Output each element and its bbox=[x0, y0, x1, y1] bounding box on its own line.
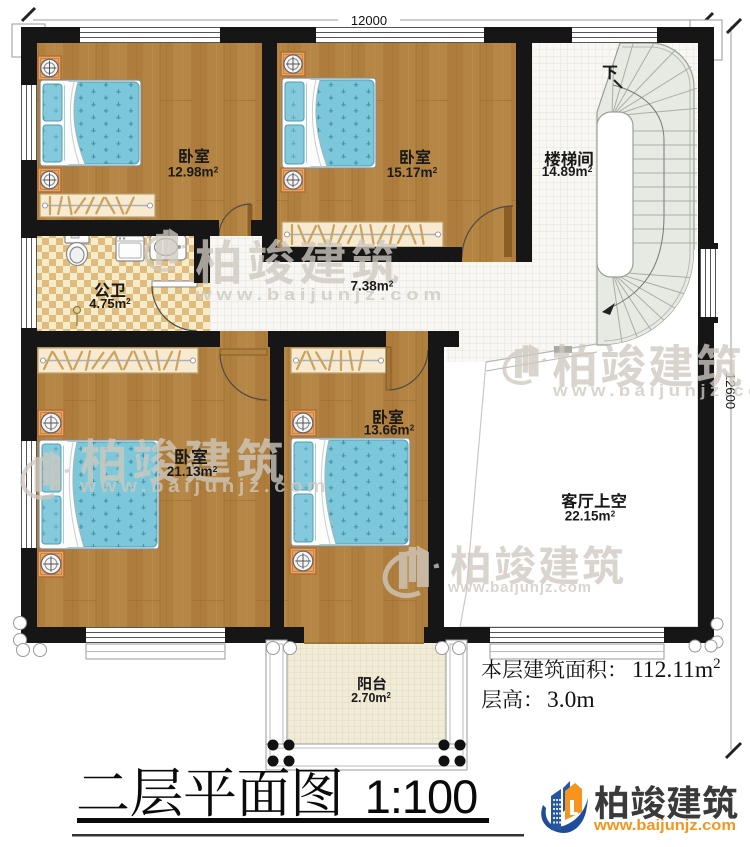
svg-text:www.baijunjz.com: www.baijunjz.com bbox=[195, 285, 446, 304]
svg-text:13.66m2: 13.66m2 bbox=[364, 422, 415, 437]
svg-text:4.75m2: 4.75m2 bbox=[89, 296, 131, 311]
svg-text:www.baijunjz.com: www.baijunjz.com bbox=[552, 381, 750, 400]
svg-text:112.11m2: 112.11m2 bbox=[632, 656, 721, 683]
svg-text:7.38m2: 7.38m2 bbox=[351, 278, 394, 293]
svg-text:www.baijunjz.com: www.baijunjz.com bbox=[593, 817, 736, 834]
svg-text:12000: 12000 bbox=[351, 13, 387, 28]
svg-text:15.17m2: 15.17m2 bbox=[387, 165, 438, 180]
svg-text:1:100: 1:100 bbox=[365, 770, 478, 823]
svg-text:22.15m2: 22.15m2 bbox=[565, 508, 616, 523]
svg-text:3.0m: 3.0m bbox=[547, 687, 595, 713]
svg-text:12.98m2: 12.98m2 bbox=[168, 164, 219, 179]
svg-text:www.baijunjz.com: www.baijunjz.com bbox=[447, 579, 592, 596]
svg-text:2.70m2: 2.70m2 bbox=[351, 691, 391, 705]
svg-text:14.89m2: 14.89m2 bbox=[542, 164, 593, 179]
svg-text:21.13m2: 21.13m2 bbox=[167, 464, 218, 479]
